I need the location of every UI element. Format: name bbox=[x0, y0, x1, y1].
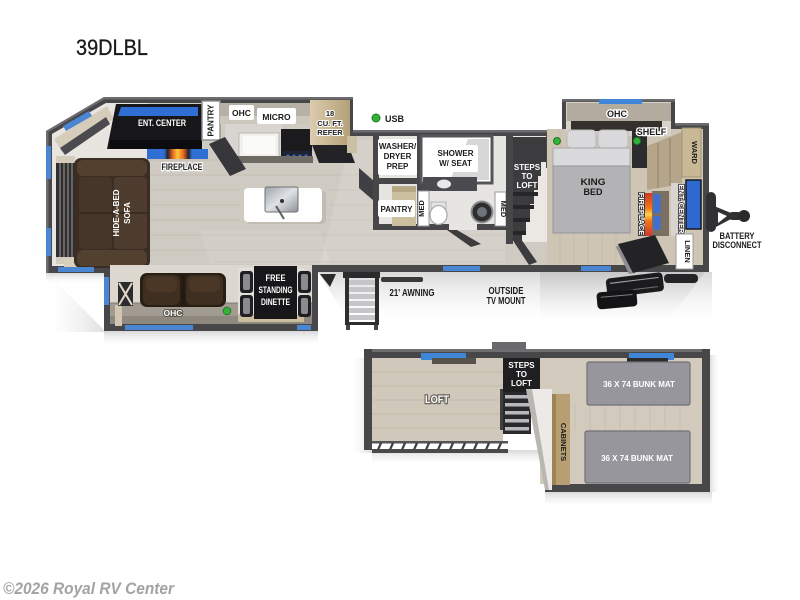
svg-text:ENT. CENTER: ENT. CENTER bbox=[677, 184, 686, 234]
svg-text:DINETTE: DINETTE bbox=[261, 297, 290, 307]
svg-text:MED: MED bbox=[417, 200, 426, 217]
svg-text:DRYER: DRYER bbox=[384, 152, 412, 161]
svg-text:SHOWER: SHOWER bbox=[438, 149, 474, 158]
svg-text:LOFT: LOFT bbox=[425, 394, 449, 406]
svg-text:©2026 Royal RV Center: ©2026 Royal RV Center bbox=[3, 579, 175, 598]
svg-text:PANTRY: PANTRY bbox=[381, 205, 414, 214]
svg-text:FIREPLACE: FIREPLACE bbox=[637, 193, 646, 236]
svg-text:OHC: OHC bbox=[232, 108, 251, 118]
svg-text:PREP: PREP bbox=[387, 162, 409, 171]
svg-text:ENT. CENTER: ENT. CENTER bbox=[138, 118, 186, 129]
svg-text:TO: TO bbox=[516, 370, 527, 379]
svg-text:USB: USB bbox=[385, 114, 405, 124]
svg-text:MICRO: MICRO bbox=[262, 112, 291, 122]
svg-text:OHC: OHC bbox=[607, 109, 628, 119]
svg-text:DISCONNECT: DISCONNECT bbox=[713, 240, 762, 251]
svg-text:FIREPLACE: FIREPLACE bbox=[162, 162, 203, 173]
svg-text:REFER: REFER bbox=[317, 128, 343, 137]
svg-text:36 X 74 BUNK MAT: 36 X 74 BUNK MAT bbox=[603, 380, 675, 389]
svg-text:LOFT: LOFT bbox=[511, 379, 532, 388]
svg-text:W/ SEAT: W/ SEAT bbox=[439, 159, 472, 168]
svg-text:TO: TO bbox=[522, 172, 533, 181]
svg-text:CU. FT.: CU. FT. bbox=[317, 119, 342, 128]
svg-text:21' AWNING: 21' AWNING bbox=[390, 288, 435, 299]
svg-text:18: 18 bbox=[326, 109, 334, 118]
svg-text:STANDING: STANDING bbox=[259, 285, 293, 295]
svg-text:TV MOUNT: TV MOUNT bbox=[487, 296, 526, 307]
svg-text:WARD: WARD bbox=[690, 141, 699, 164]
svg-text:PANTRY: PANTRY bbox=[207, 104, 216, 137]
svg-text:BED: BED bbox=[584, 187, 603, 198]
svg-text:STEPS: STEPS bbox=[508, 361, 535, 370]
svg-text:39DLBL: 39DLBL bbox=[76, 35, 148, 60]
svg-text:LINEN: LINEN bbox=[683, 240, 692, 263]
svg-text:36 X 74 BUNK MAT: 36 X 74 BUNK MAT bbox=[601, 454, 673, 463]
svg-text:SHELF: SHELF bbox=[637, 127, 667, 137]
svg-text:FREE: FREE bbox=[266, 273, 286, 283]
svg-text:WASHER/: WASHER/ bbox=[379, 142, 417, 151]
svg-text:OHC: OHC bbox=[164, 308, 183, 318]
svg-text:STEPS: STEPS bbox=[514, 163, 541, 172]
svg-text:HIDE-A-BED: HIDE-A-BED bbox=[112, 189, 121, 236]
svg-text:SOFA: SOFA bbox=[123, 202, 132, 224]
svg-text:LOFT: LOFT bbox=[517, 181, 538, 190]
svg-text:CABINETS: CABINETS bbox=[559, 423, 568, 461]
